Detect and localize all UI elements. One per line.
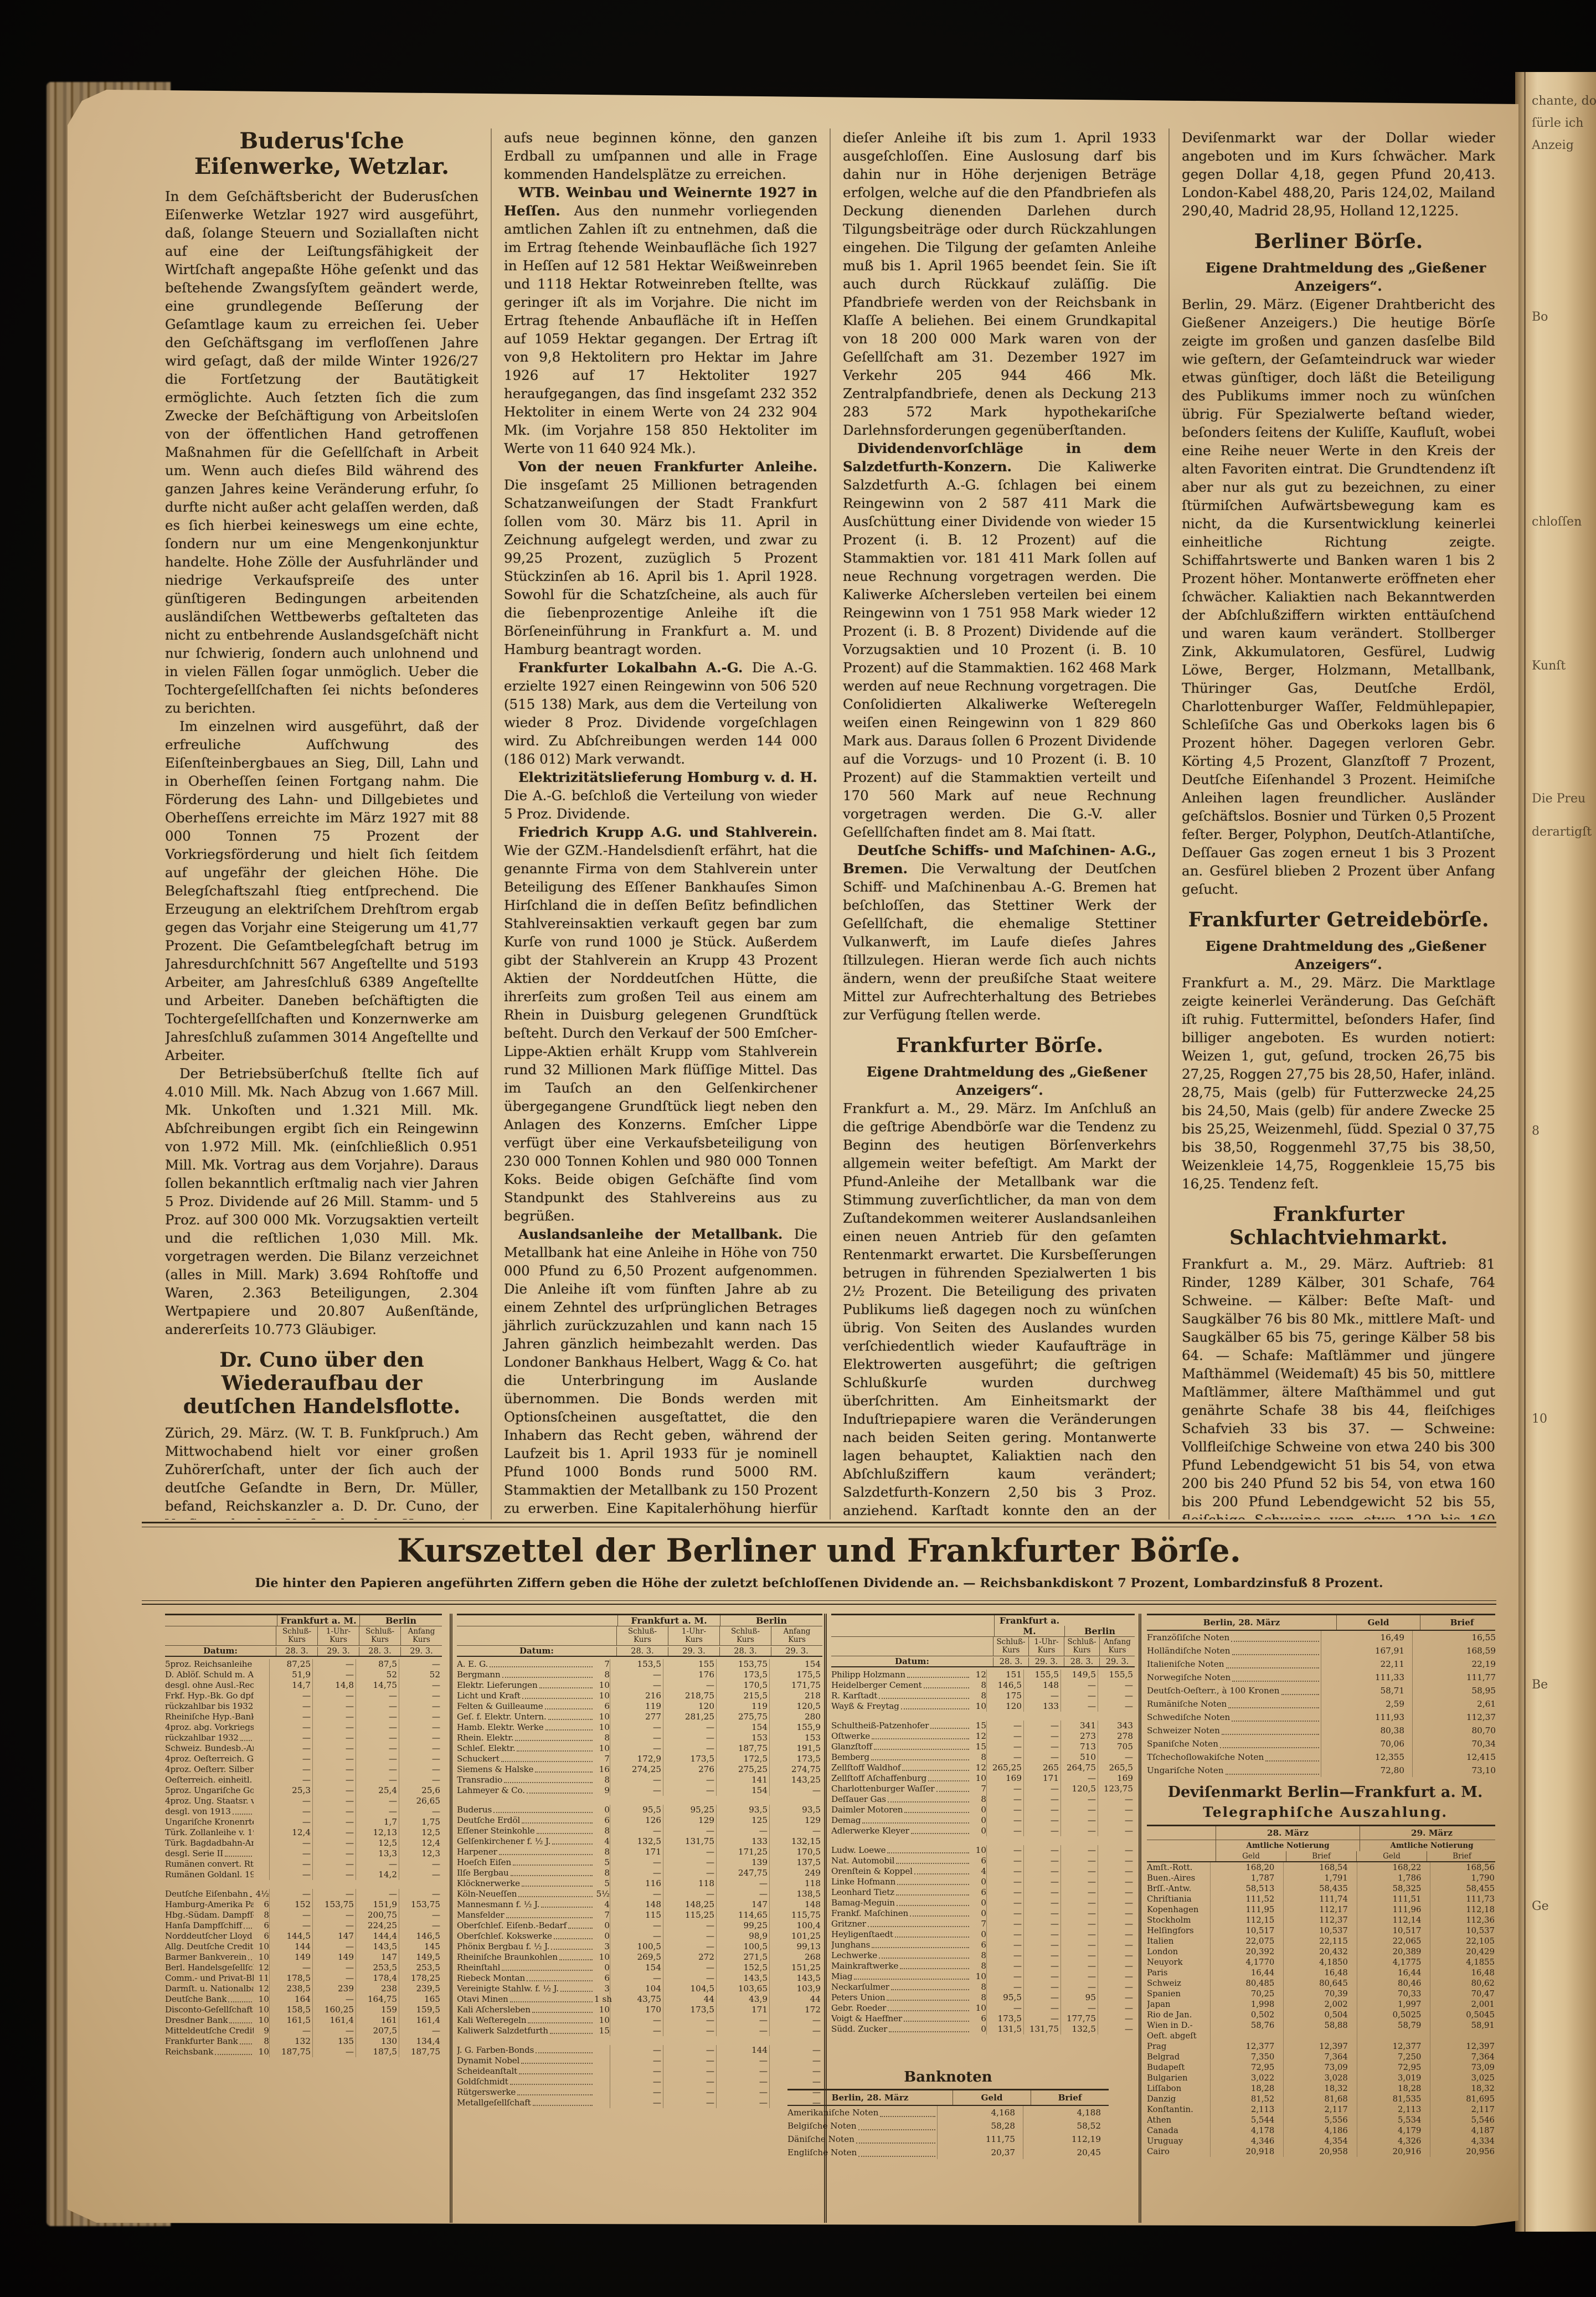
- price-cell: —: [610, 1920, 663, 1931]
- article-paragraph: Deviſenmarkt war der Dollar wieder angeb…: [1182, 128, 1495, 220]
- geld-brief-header: Geld: [1216, 1851, 1286, 1861]
- price-cell: —: [663, 2077, 716, 2087]
- date-header: 28. 3.: [719, 1647, 771, 1656]
- devisen-row: Cairo20,91820,95820,91620,956: [1147, 2146, 1495, 2157]
- price-cell: 87,25: [269, 1659, 312, 1670]
- currency-name: Italieniſche Noten: [1147, 1657, 1321, 1671]
- price-cell: 153,5: [610, 1659, 663, 1670]
- dividend-value: 3: [594, 1984, 610, 1994]
- table-row: Voigt & Haeffner6173,5—177,75—: [831, 2013, 1135, 2024]
- rate-cell: 2,117: [1430, 2104, 1495, 2115]
- dividend-value: [254, 1838, 269, 1848]
- price-cell: 276: [663, 1764, 716, 1775]
- article-paragraph: Der Betriebsüberſchuß ſtellte ſich auf 4…: [165, 1064, 478, 1338]
- place-name: Belgrad: [1147, 2052, 1210, 2062]
- leader-dots: [225, 1848, 252, 1857]
- price-cell: 170,5: [769, 1847, 822, 1857]
- geld-header: Geld: [1336, 1615, 1420, 1630]
- price-cell: —: [1023, 1866, 1060, 1877]
- price-cell: 272: [663, 1952, 716, 1963]
- security-name: Oberſchleſ. Eiſenb.-Bedarf: [457, 1920, 594, 1931]
- price-cell: —: [1098, 1961, 1135, 1971]
- leader-dots: [233, 1806, 252, 1815]
- table-row: Hbg.-Südam. Dampfſch.8——200,75—: [165, 1910, 442, 1920]
- place-name: Athen: [1147, 2115, 1210, 2125]
- table-group-elektro-montan: Frankfurt a. M.BerlinSchluß- Kurs1-Uhr- …: [450, 1614, 822, 2223]
- table-row: Kaliwerk Salzdetfurth15————: [457, 2026, 822, 2036]
- security-name: Schultheiß-Patzenhofer: [831, 1721, 971, 1731]
- rate-cell: 4,1770: [1210, 1957, 1284, 1968]
- noten-row: Italieniſche Noten22,1122,19: [1147, 1657, 1495, 1671]
- table-row: Elektr. Lieferungen10——170,5171,75: [457, 1680, 822, 1691]
- dividend-value: [254, 1817, 269, 1827]
- price-cell: —: [399, 1754, 442, 1764]
- table-row: Rütgerswerke————: [457, 2087, 822, 2098]
- rate-cell: 58,76: [1210, 2020, 1284, 2041]
- security-name: Rhein. Elektr.: [457, 1733, 594, 1743]
- dividend-value: 12: [971, 1763, 986, 1773]
- price-cell: 218,75: [663, 1691, 716, 1701]
- name-text: Mitteldeutſche Creditbank: [165, 2026, 254, 2036]
- place-name: Amſt.-Rott.: [1147, 1862, 1210, 1873]
- security-name: 5proz. Reichsanleihe v. 1927: [165, 1659, 254, 1670]
- date-header: 29. 3.: [1099, 1657, 1135, 1666]
- price-cell: —: [610, 2045, 663, 2056]
- price-cell: 160,25: [312, 2005, 356, 2015]
- devisen-row: Buen.-Aires1,7871,7911,7861,790: [1147, 1873, 1495, 1883]
- table-row: Gritzner7————: [831, 1919, 1135, 1929]
- geld-value: 22,11: [1321, 1657, 1412, 1671]
- place-name: Buen.-Aires: [1147, 1873, 1210, 1883]
- security-name: Darmſt. u. Nationalbank: [165, 1984, 254, 1994]
- rate-cell: 4,334: [1430, 2136, 1495, 2146]
- rate-cell: 58,513: [1210, 1883, 1284, 1894]
- price-cell: —: [1023, 1752, 1060, 1763]
- table-row: Oeſterreich. einheitl. Rte————: [165, 1775, 442, 1785]
- leader-dots: [1226, 1657, 1319, 1668]
- table-row: desgl. ohne Ausl.-Rechten14,714,814,75—: [165, 1680, 442, 1691]
- price-cell: —: [610, 2066, 663, 2077]
- leader-dots: [1222, 1724, 1319, 1735]
- rate-cell: 20,432: [1283, 1946, 1357, 1957]
- price-cell: —: [716, 2056, 769, 2066]
- price-cell: 175,5: [769, 1670, 822, 1680]
- banknoten-row: Engliſche Noten20,3720,45: [787, 2146, 1109, 2159]
- price-cell: 126: [610, 1815, 663, 1826]
- price-cell: 161,4: [399, 2015, 442, 2026]
- geld-brief-header: Geld: [1356, 1851, 1427, 1861]
- price-cell: —: [1098, 2013, 1135, 2024]
- brief-value: 80,70: [1412, 1724, 1495, 1737]
- leader-dots: [506, 1910, 593, 1918]
- price-cell: —: [312, 1691, 356, 1701]
- newspaper-page: Buderus'ſche Eiſenwerke, Wetzlar.In dem …: [68, 84, 1518, 2226]
- devisen-date-header: 28. März29. März: [1147, 1825, 1495, 1840]
- leader-dots: [907, 1670, 969, 1678]
- security-name: Köln-Neueſſen: [457, 1889, 594, 1899]
- price-cell: —: [312, 1817, 356, 1827]
- brief-value: 112,37: [1412, 1711, 1495, 1724]
- dividend-value: [254, 1869, 269, 1880]
- table-row: Berl. Handelsgeſellſch.12——253,5253,5: [165, 1963, 442, 1973]
- drahtmeldung-line: Eigene Drahtmeldung des „Gießener Anzeig…: [1182, 937, 1495, 974]
- security-name: Eſſener Steinkohle: [457, 1826, 594, 1836]
- price-cell: —: [1098, 1929, 1135, 1940]
- brief-value: 12,415: [1412, 1750, 1495, 1764]
- price-cell: 43,75: [610, 1994, 663, 2005]
- geld-value: 80,38: [1321, 1724, 1412, 1737]
- security-name: Voigt & Haeffner: [831, 2013, 971, 2024]
- price-cell: —: [1060, 1877, 1098, 1887]
- leader-dots: [490, 1659, 593, 1667]
- rate-cell: 70,25: [1210, 1989, 1284, 1999]
- table-row: rückzahlbar 1932————: [165, 1733, 442, 1743]
- place-name: Wien in D.-Oeſt. abgeſt: [1147, 2020, 1210, 2041]
- name-text: Dresdner Bank: [165, 2015, 228, 2026]
- note-name: Däniſche Noten: [787, 2133, 937, 2146]
- kurs-type-header: 1-Uhr- Kurs: [317, 1626, 359, 1645]
- table-row: Schleſ. Elektr.10——187,75191,5: [457, 1743, 822, 1754]
- name-text: Berl. Handelsgeſellſch.: [165, 1963, 254, 1973]
- dividend-value: 15: [971, 1742, 986, 1752]
- name-text: Oberſchleſ. Kokswerke: [457, 1931, 552, 1941]
- noten-header: Berlin, 28. MärzGeldBrief: [1147, 1614, 1495, 1631]
- price-cell: 161,5: [269, 2015, 312, 2026]
- noten-row: Spaniſche Noten70,0670,34: [1147, 1737, 1495, 1750]
- price-cell: —: [1098, 1950, 1135, 1961]
- price-cell: 187,75: [716, 1743, 769, 1754]
- leader-dots: [900, 1961, 969, 1969]
- brief-value: 58,52: [1023, 2119, 1109, 2133]
- dividend-value: 8: [971, 1752, 986, 1763]
- price-cell: —: [312, 1973, 356, 1984]
- price-cell: 119: [610, 1701, 663, 1712]
- rate-cell: 81,535: [1357, 2094, 1430, 2104]
- price-cell: —: [312, 1743, 356, 1754]
- security-name: Vereinigte Stahlw. f. ½ J.: [457, 1984, 594, 1994]
- dividend-value: 0: [971, 2024, 986, 2035]
- price-cell: 93,5: [769, 1805, 822, 1815]
- brief-header: Brief: [1031, 2090, 1109, 2105]
- leader-dots: [539, 1680, 593, 1688]
- price-cell: 132: [269, 2036, 312, 2047]
- rate-cell: 0,5045: [1430, 2010, 1495, 2020]
- price-cell: —: [1060, 1898, 1098, 1908]
- price-cell: —: [610, 2015, 663, 2026]
- price-cell: —: [663, 1826, 716, 1836]
- article-paragraph: Deutſche Schiffs- und Maſchinen- A.G., B…: [843, 841, 1156, 1024]
- rate-cell: 5,546: [1430, 2115, 1495, 2125]
- rate-cell: 4,1850: [1283, 1957, 1357, 1968]
- security-name: Glanzſtoff: [831, 1742, 971, 1752]
- rate-cell: 18,32: [1283, 2083, 1357, 2094]
- drahtmeldung-line: Eigene Drahtmeldung des „Gießener Anzeig…: [1182, 259, 1495, 295]
- price-cell: —: [312, 1764, 356, 1775]
- price-cell: —: [399, 1920, 442, 1931]
- price-cell: 148: [1023, 1680, 1060, 1691]
- banknoten-header: Berlin, 28. MärzGeldBrief: [787, 2089, 1109, 2106]
- price-cell: 116: [610, 1878, 663, 1889]
- name-text: Felten & Guilleaume: [457, 1701, 543, 1712]
- price-cell: —: [312, 1785, 356, 1796]
- leader-dots: [240, 1733, 252, 1741]
- price-cell: 224,25: [356, 1920, 399, 1931]
- rate-cell: 3,025: [1430, 2073, 1495, 2083]
- price-cell: —: [269, 1859, 312, 1869]
- rate-cell: 112,36: [1430, 1915, 1495, 1925]
- header-market-row: Frankfurt a. M.Berlin: [165, 1615, 442, 1626]
- price-cell: —: [1060, 1815, 1098, 1826]
- dividend-value: 0: [971, 1815, 986, 1826]
- dividend-value: [254, 1670, 269, 1680]
- name-text: Kali Weſteregeln: [457, 2015, 526, 2026]
- article-headline: Frankfurter Getreidebörſe.: [1182, 908, 1495, 931]
- geld-brief-header: Brief: [1286, 1851, 1356, 1861]
- price-cell: —: [769, 1826, 822, 1836]
- price-cell: 153,75: [312, 1899, 356, 1910]
- rate-cell: 70,39: [1283, 1989, 1357, 1999]
- security-name: Gritzner: [831, 1919, 971, 1929]
- rate-cell: 22,105: [1430, 1936, 1495, 1946]
- security-name: R. Karſtadt: [831, 1691, 971, 1701]
- kurs-type-header: Schluß- Kurs: [719, 1626, 771, 1645]
- price-cell: 239: [312, 1984, 356, 1994]
- price-cell: —: [1060, 1929, 1098, 1940]
- price-cell: —: [1060, 1691, 1098, 1701]
- dividend-value: 10: [254, 1994, 269, 2005]
- security-name: Türk. Bagdadbahn-Anl. I: [165, 1838, 254, 1848]
- leader-dots: [517, 2087, 593, 2095]
- place-name: Schweiz: [1147, 1978, 1210, 1989]
- table-row: Gebr. Roeder10————: [831, 2003, 1135, 2013]
- leader-dots: [554, 1931, 593, 1939]
- price-cell: 159: [356, 2005, 399, 2015]
- place-name: Brſſ.-Antw.: [1147, 1883, 1210, 1894]
- leader-dots: [858, 2119, 935, 2130]
- price-cell: 125: [716, 1815, 769, 1826]
- price-cell: 169: [1098, 1773, 1135, 1784]
- security-name: Oeſterreich. einheitl. Rte: [165, 1775, 254, 1785]
- geld-value: 111,93: [1321, 1711, 1412, 1724]
- dividend-value: 10: [254, 2005, 269, 2015]
- name-text: Nat. Automobil: [831, 1856, 894, 1866]
- name-text: Linke Hofmann: [831, 1877, 895, 1887]
- rate-cell: 10,517: [1210, 1925, 1284, 1936]
- name-text: Oberſchleſ. Eiſenb.-Bedarf: [457, 1920, 567, 1931]
- security-name: Barmer Bankverein: [165, 1952, 254, 1963]
- price-cell: —: [986, 1908, 1023, 1919]
- name-text: Disconto-Geſellſchaft Ant.: [165, 2005, 254, 2015]
- price-cell: —: [312, 2047, 356, 2057]
- price-cell: 138,5: [769, 1889, 822, 1899]
- name-text: Deutſche Eiſenbahn: [165, 1889, 248, 1899]
- leader-dots: [521, 2056, 593, 2064]
- table-group-noten-devisen: Berlin, 28. MärzGeldBriefFranzöſiſche No…: [1139, 1614, 1495, 2223]
- price-cell: —: [986, 1805, 1023, 1815]
- price-cell: —: [269, 1712, 312, 1722]
- name-text: Spaniſche Noten: [1147, 1737, 1218, 1750]
- place-name: Prag: [1147, 2041, 1210, 2052]
- security-name: desgl. ohne Ausl.-Rechten: [165, 1680, 254, 1691]
- dividend-value: 10: [254, 2047, 269, 2057]
- leader-dots: [872, 1731, 969, 1739]
- name-text: Mainkraftwerke: [831, 1961, 898, 1971]
- security-name: Daimler Motoren: [831, 1805, 971, 1815]
- dividend-value: 8: [971, 1680, 986, 1691]
- security-name: Rumänen Goldanl. 1913: [165, 1869, 254, 1880]
- price-cell: —: [716, 2077, 769, 2087]
- price-cell: 95,5: [610, 1805, 663, 1815]
- paragraph-lead: Von der neuen Frankfurter Anleihe.: [518, 459, 817, 475]
- security-name: Lechwerke: [831, 1950, 971, 1961]
- leader-dots: [872, 1940, 969, 1948]
- security-name: Hoeſch Eiſen: [457, 1857, 594, 1868]
- noten-header-label: Berlin, 28. März: [1147, 1615, 1336, 1630]
- price-cell: 275,25: [716, 1764, 769, 1775]
- name-text: Gebr. Roeder: [831, 2003, 886, 2013]
- name-text: Gelſenkirchener f. ½ J.: [457, 1836, 550, 1847]
- price-cell: —: [312, 1659, 356, 1670]
- price-cell: —: [663, 2015, 716, 2026]
- security-name: Leonhard Tietz: [831, 1887, 971, 1898]
- dividend-value: 10: [254, 1952, 269, 1963]
- table-row: Rheiniſche Braunkohlen10269,5272271,5268: [457, 1952, 822, 1963]
- price-cell: 216: [610, 1691, 663, 1701]
- price-cell: —: [399, 1722, 442, 1733]
- rate-cell: 111,74: [1283, 1894, 1357, 1904]
- dividend-value: 8: [254, 2036, 269, 2047]
- dividend-value: 0: [971, 1908, 986, 1919]
- price-cell: 177,75: [1060, 2013, 1098, 2024]
- dividend-value: [254, 1659, 269, 1670]
- text-fragment: Ge: [1532, 1899, 1549, 1913]
- price-cell: —: [1060, 1794, 1098, 1805]
- leader-dots: [889, 2024, 969, 2032]
- name-text: Gritzner: [831, 1919, 866, 1929]
- price-cell: —: [269, 1701, 312, 1712]
- dividend-value: [594, 2077, 610, 2087]
- geld-header: Geld: [953, 2090, 1031, 2105]
- price-cell: —: [986, 1919, 1023, 1929]
- security-name: Oberſchleſ. Kokswerke: [457, 1931, 594, 1941]
- page-crease: [1524, 72, 1526, 2232]
- rate-cell: 16,48: [1283, 1968, 1357, 1978]
- price-cell: —: [663, 1963, 716, 1973]
- column-1: Buderus'ſche Eiſenwerke, Wetzlar.In dem …: [165, 128, 478, 1520]
- security-name: Deutſche Eiſenbahn: [165, 1889, 254, 1899]
- rate-cell: 4,354: [1283, 2136, 1357, 2146]
- price-cell: —: [269, 1910, 312, 1920]
- leader-dots: [880, 2106, 935, 2117]
- price-cell: —: [716, 2026, 769, 2036]
- price-cell: —: [1098, 1691, 1135, 1701]
- security-name: Bamag-Meguin: [831, 1898, 971, 1908]
- price-cell: 149: [312, 1952, 356, 1963]
- price-cell: 187,75: [269, 2047, 312, 2057]
- security-name: Klöcknerwerke: [457, 1878, 594, 1889]
- leader-dots: [874, 1742, 969, 1750]
- table-row: Adlerwerke Kleyer0————: [831, 1826, 1135, 1836]
- price-cell: 148: [769, 1899, 822, 1910]
- security-name: Buderus: [457, 1805, 594, 1815]
- table-row: 4proz. Oeſterreich. Goldrte————: [165, 1754, 442, 1764]
- rate-cell: 22,075: [1210, 1936, 1284, 1946]
- rate-cell: 58,455: [1430, 1883, 1495, 1894]
- paragraph-lead: Auslandsanleihe der Metallbank.: [518, 1226, 794, 1242]
- dividend-value: [254, 1701, 269, 1712]
- price-cell: —: [1098, 1982, 1135, 1992]
- security-name: Zellſtoff Aſchaffenburg: [831, 1773, 971, 1784]
- brief-value: 58,95: [1412, 1684, 1495, 1697]
- rate-cell: 111,51: [1357, 1894, 1430, 1904]
- place-name: Konſtantin.: [1147, 2104, 1210, 2115]
- price-cell: 12,5: [356, 1838, 399, 1848]
- dividend-value: 9: [594, 1785, 610, 1796]
- price-cell: —: [356, 1764, 399, 1775]
- leader-dots: [1281, 1684, 1319, 1695]
- currency-name: Deutſch-Oeſterr., à 100 Kronen: [1147, 1684, 1321, 1697]
- price-cell: —: [1060, 1826, 1098, 1836]
- table-row: Linke Hofmann0————: [831, 1877, 1135, 1887]
- devisen-row: Rio de Jan.0,5020,5040,50250,5045: [1147, 2010, 1495, 2020]
- price-cell: 154: [610, 1963, 663, 1973]
- price-cell: 161: [356, 2015, 399, 2026]
- dividend-value: 6: [594, 1701, 610, 1712]
- table-row: Nat. Automobil6————: [831, 1856, 1135, 1866]
- price-cell: —: [610, 2077, 663, 2087]
- dividend-value: [254, 1764, 269, 1775]
- dividend-value: 7: [594, 1659, 610, 1670]
- security-name: Südd. Zucker: [831, 2024, 971, 2035]
- kurs-type-header: Anfang Kurs: [771, 1626, 822, 1645]
- security-name: Dresdner Bank: [165, 2015, 254, 2026]
- table-row: Mitteldeutſche Creditbank9——207,5—: [165, 2026, 442, 2036]
- rate-cell: 18,28: [1357, 2083, 1430, 2094]
- rate-cell: 4,186: [1283, 2125, 1357, 2136]
- dividend-value: 10: [594, 2015, 610, 2026]
- name-text: Reichsbank: [165, 2047, 213, 2057]
- name-text: Schultheiß-Patzenhofer: [831, 1721, 929, 1731]
- place-name: London: [1147, 1946, 1210, 1957]
- name-text: Geſ. f. Elektr. Untern.: [457, 1712, 547, 1722]
- price-cell: —: [399, 1659, 442, 1670]
- name-text: Holländiſche Noten: [1147, 1644, 1231, 1657]
- leader-dots: [904, 2013, 969, 2022]
- devisen-row: Helſingfors10,51710,53710,51710,537: [1147, 1925, 1495, 1936]
- noten-row: Deutſch-Oeſterr., à 100 Kronen58,7158,95: [1147, 1684, 1495, 1697]
- price-cell: —: [663, 1785, 716, 1796]
- price-cell: —: [716, 2098, 769, 2108]
- currency-name: Franzöſiſche Noten: [1147, 1631, 1321, 1644]
- price-cell: —: [986, 1742, 1023, 1752]
- brief-value: 16,55: [1412, 1631, 1495, 1644]
- price-cell: —: [663, 1775, 716, 1785]
- price-cell: —: [312, 1701, 356, 1712]
- price-cell: 100,4: [769, 1920, 822, 1931]
- price-cell: —: [1060, 1961, 1098, 1971]
- leader-dots: [228, 1994, 252, 2002]
- table-row: Deutſche Bank10164—164,75165: [165, 1994, 442, 2005]
- name-text: Hamburg-Amerika Paket: [165, 1899, 254, 1910]
- text-fragment: derartigſt: [1532, 825, 1592, 839]
- price-cell: —: [356, 1701, 399, 1712]
- dividend-value: 10: [254, 1941, 269, 1952]
- price-cell: —: [312, 1859, 356, 1869]
- dividend-value: 0: [594, 1931, 610, 1941]
- price-cell: —: [663, 1973, 716, 1984]
- price-cell: 169: [986, 1773, 1023, 1784]
- price-cell: —: [356, 1775, 399, 1785]
